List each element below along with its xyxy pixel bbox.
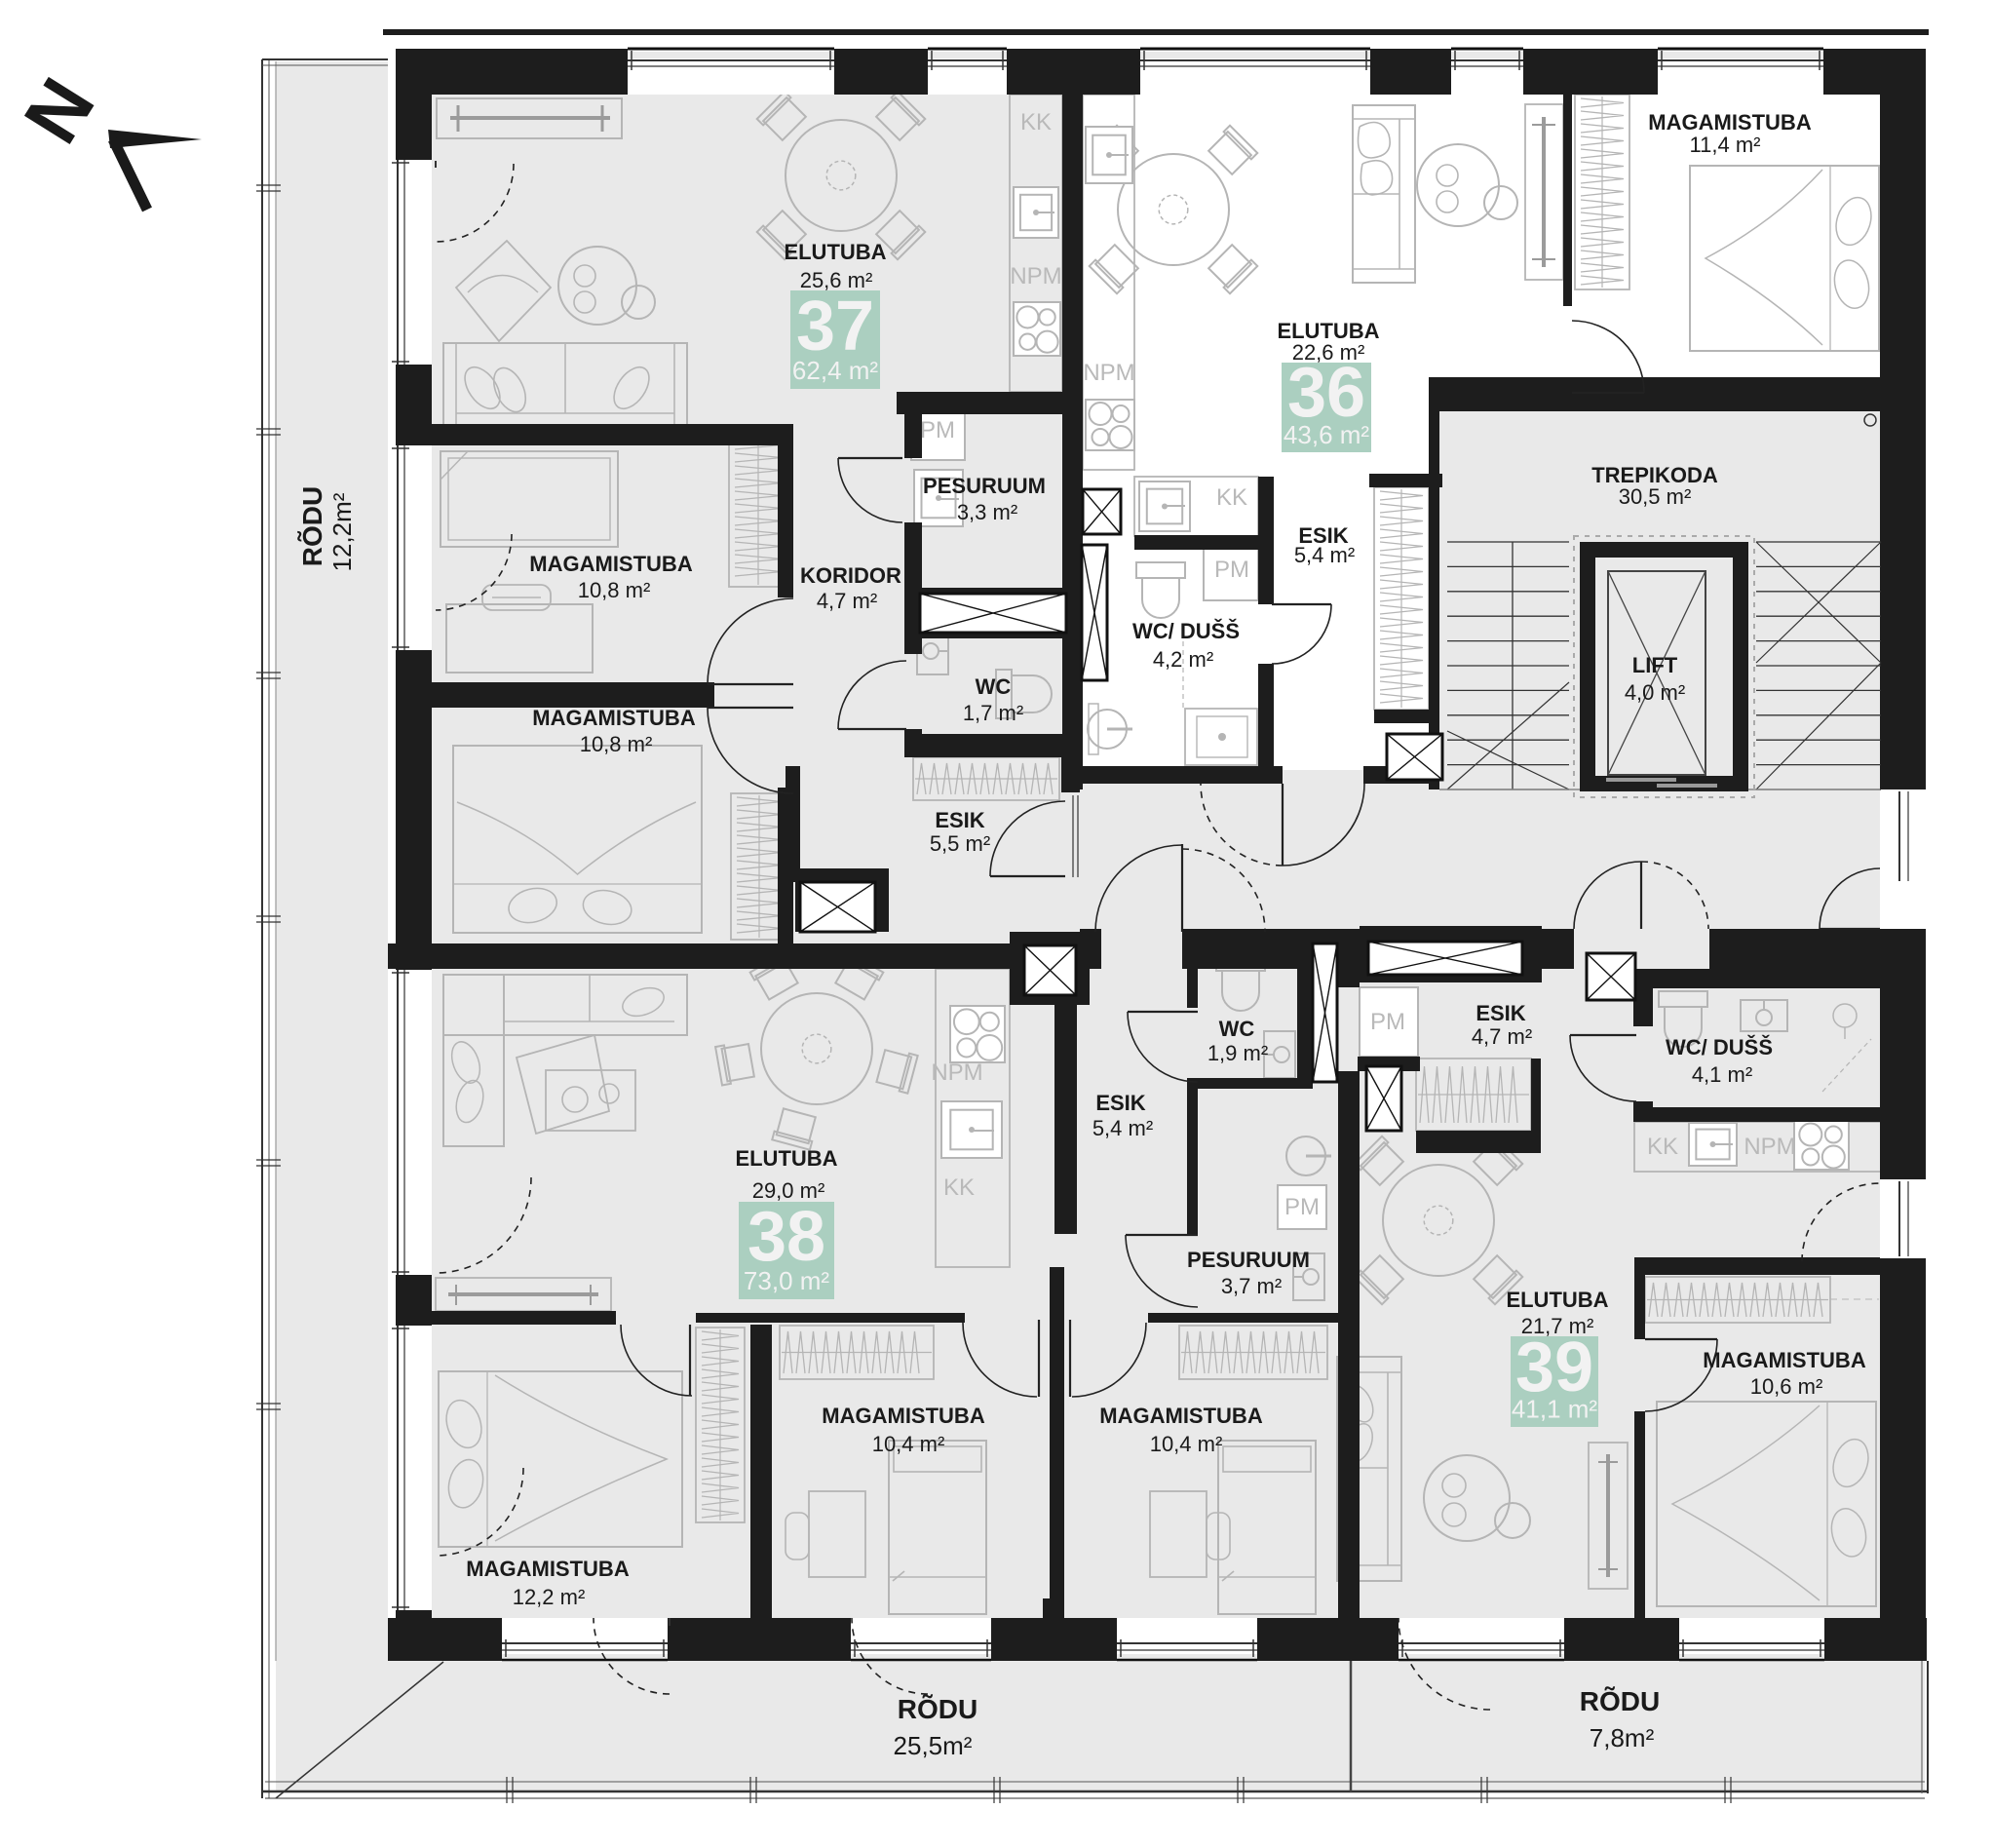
svg-text:43,6 m²: 43,6 m² xyxy=(1284,420,1369,449)
svg-text:1,7 m²: 1,7 m² xyxy=(963,701,1023,725)
svg-text:PESURUUM: PESURUUM xyxy=(1187,1248,1310,1272)
svg-text:5,4 m²: 5,4 m² xyxy=(1294,543,1355,567)
svg-text:KK: KK xyxy=(1020,109,1052,135)
svg-text:ESIK: ESIK xyxy=(1095,1091,1145,1115)
svg-text:11,4 m²: 11,4 m² xyxy=(1690,133,1761,157)
svg-text:WC: WC xyxy=(976,674,1012,699)
svg-text:7,8m²: 7,8m² xyxy=(1590,1723,1655,1752)
svg-text:30,5 m²: 30,5 m² xyxy=(1619,484,1692,509)
svg-text:KORIDOR: KORIDOR xyxy=(800,563,901,588)
svg-text:62,4 m²: 62,4 m² xyxy=(792,356,878,385)
svg-text:ESIK: ESIK xyxy=(935,808,984,832)
svg-text:25,5m²: 25,5m² xyxy=(894,1731,973,1760)
svg-text:KK: KK xyxy=(1647,1134,1678,1160)
svg-text:KK: KK xyxy=(943,1174,975,1201)
svg-text:38: 38 xyxy=(747,1198,825,1276)
svg-text:10,6 m²: 10,6 m² xyxy=(1750,1374,1823,1399)
svg-text:PM: PM xyxy=(1214,557,1249,583)
svg-text:3,7 m²: 3,7 m² xyxy=(1221,1274,1282,1298)
svg-text:3,3 m²: 3,3 m² xyxy=(957,500,1017,524)
svg-text:RÕDU: RÕDU xyxy=(297,486,327,566)
svg-text:WC/ DUŠŠ: WC/ DUŠŠ xyxy=(1666,1035,1773,1059)
svg-text:25,6 m²: 25,6 m² xyxy=(800,268,873,292)
svg-text:12,2m²: 12,2m² xyxy=(327,492,357,571)
svg-text:21,7 m²: 21,7 m² xyxy=(1521,1314,1594,1338)
svg-text:10,4 m²: 10,4 m² xyxy=(872,1432,945,1456)
svg-text:41,1 m²: 41,1 m² xyxy=(1512,1395,1597,1424)
svg-text:MAGAMISTUBA: MAGAMISTUBA xyxy=(1648,110,1812,135)
svg-text:PM: PM xyxy=(1370,1009,1405,1035)
svg-text:RÕDU: RÕDU xyxy=(1580,1686,1660,1716)
svg-text:MAGAMISTUBA: MAGAMISTUBA xyxy=(1099,1404,1263,1428)
svg-text:RÕDU: RÕDU xyxy=(898,1694,977,1724)
svg-text:5,5 m²: 5,5 m² xyxy=(930,831,990,856)
svg-text:4,7 m²: 4,7 m² xyxy=(817,589,877,613)
svg-text:MAGAMISTUBA: MAGAMISTUBA xyxy=(466,1557,630,1581)
svg-text:5,4 m²: 5,4 m² xyxy=(1092,1116,1153,1140)
svg-text:MAGAMISTUBA: MAGAMISTUBA xyxy=(532,706,696,730)
svg-text:ESIK: ESIK xyxy=(1476,1001,1525,1025)
svg-text:1,9 m²: 1,9 m² xyxy=(1207,1041,1268,1065)
svg-text:73,0 m²: 73,0 m² xyxy=(744,1266,829,1295)
svg-text:WC: WC xyxy=(1219,1017,1255,1041)
svg-text:WC/ DUŠŠ: WC/ DUŠŠ xyxy=(1132,619,1240,643)
svg-text:ELUTUBA: ELUTUBA xyxy=(784,240,886,264)
svg-text:37: 37 xyxy=(796,288,874,366)
svg-text:MAGAMISTUBA: MAGAMISTUBA xyxy=(529,552,693,576)
svg-text:4,2 m²: 4,2 m² xyxy=(1153,647,1213,672)
svg-text:LIFT: LIFT xyxy=(1632,653,1678,677)
svg-text:NPM: NPM xyxy=(1010,263,1061,289)
svg-text:PM: PM xyxy=(920,417,955,443)
svg-text:12,2 m²: 12,2 m² xyxy=(513,1585,586,1609)
svg-text:ELUTUBA: ELUTUBA xyxy=(735,1146,837,1171)
svg-text:10,4 m²: 10,4 m² xyxy=(1150,1432,1223,1456)
svg-text:PM: PM xyxy=(1284,1194,1320,1220)
svg-text:10,8 m²: 10,8 m² xyxy=(580,732,653,756)
svg-text:KK: KK xyxy=(1216,484,1247,511)
svg-text:MAGAMISTUBA: MAGAMISTUBA xyxy=(1703,1348,1866,1372)
svg-text:NPM: NPM xyxy=(1083,360,1134,386)
svg-text:10,8 m²: 10,8 m² xyxy=(578,578,651,602)
svg-text:29,0 m²: 29,0 m² xyxy=(752,1178,825,1203)
svg-text:NPM: NPM xyxy=(931,1059,982,1086)
svg-text:MAGAMISTUBA: MAGAMISTUBA xyxy=(822,1404,985,1428)
svg-text:4,7 m²: 4,7 m² xyxy=(1472,1024,1532,1049)
svg-text:ELUTUBA: ELUTUBA xyxy=(1506,1288,1608,1312)
svg-text:4,0 m²: 4,0 m² xyxy=(1625,680,1685,705)
svg-text:22,6 m²: 22,6 m² xyxy=(1292,340,1365,365)
svg-text:NPM: NPM xyxy=(1744,1134,1795,1160)
svg-text:4,1 m²: 4,1 m² xyxy=(1692,1062,1752,1087)
svg-text:PESURUUM: PESURUUM xyxy=(923,474,1046,498)
